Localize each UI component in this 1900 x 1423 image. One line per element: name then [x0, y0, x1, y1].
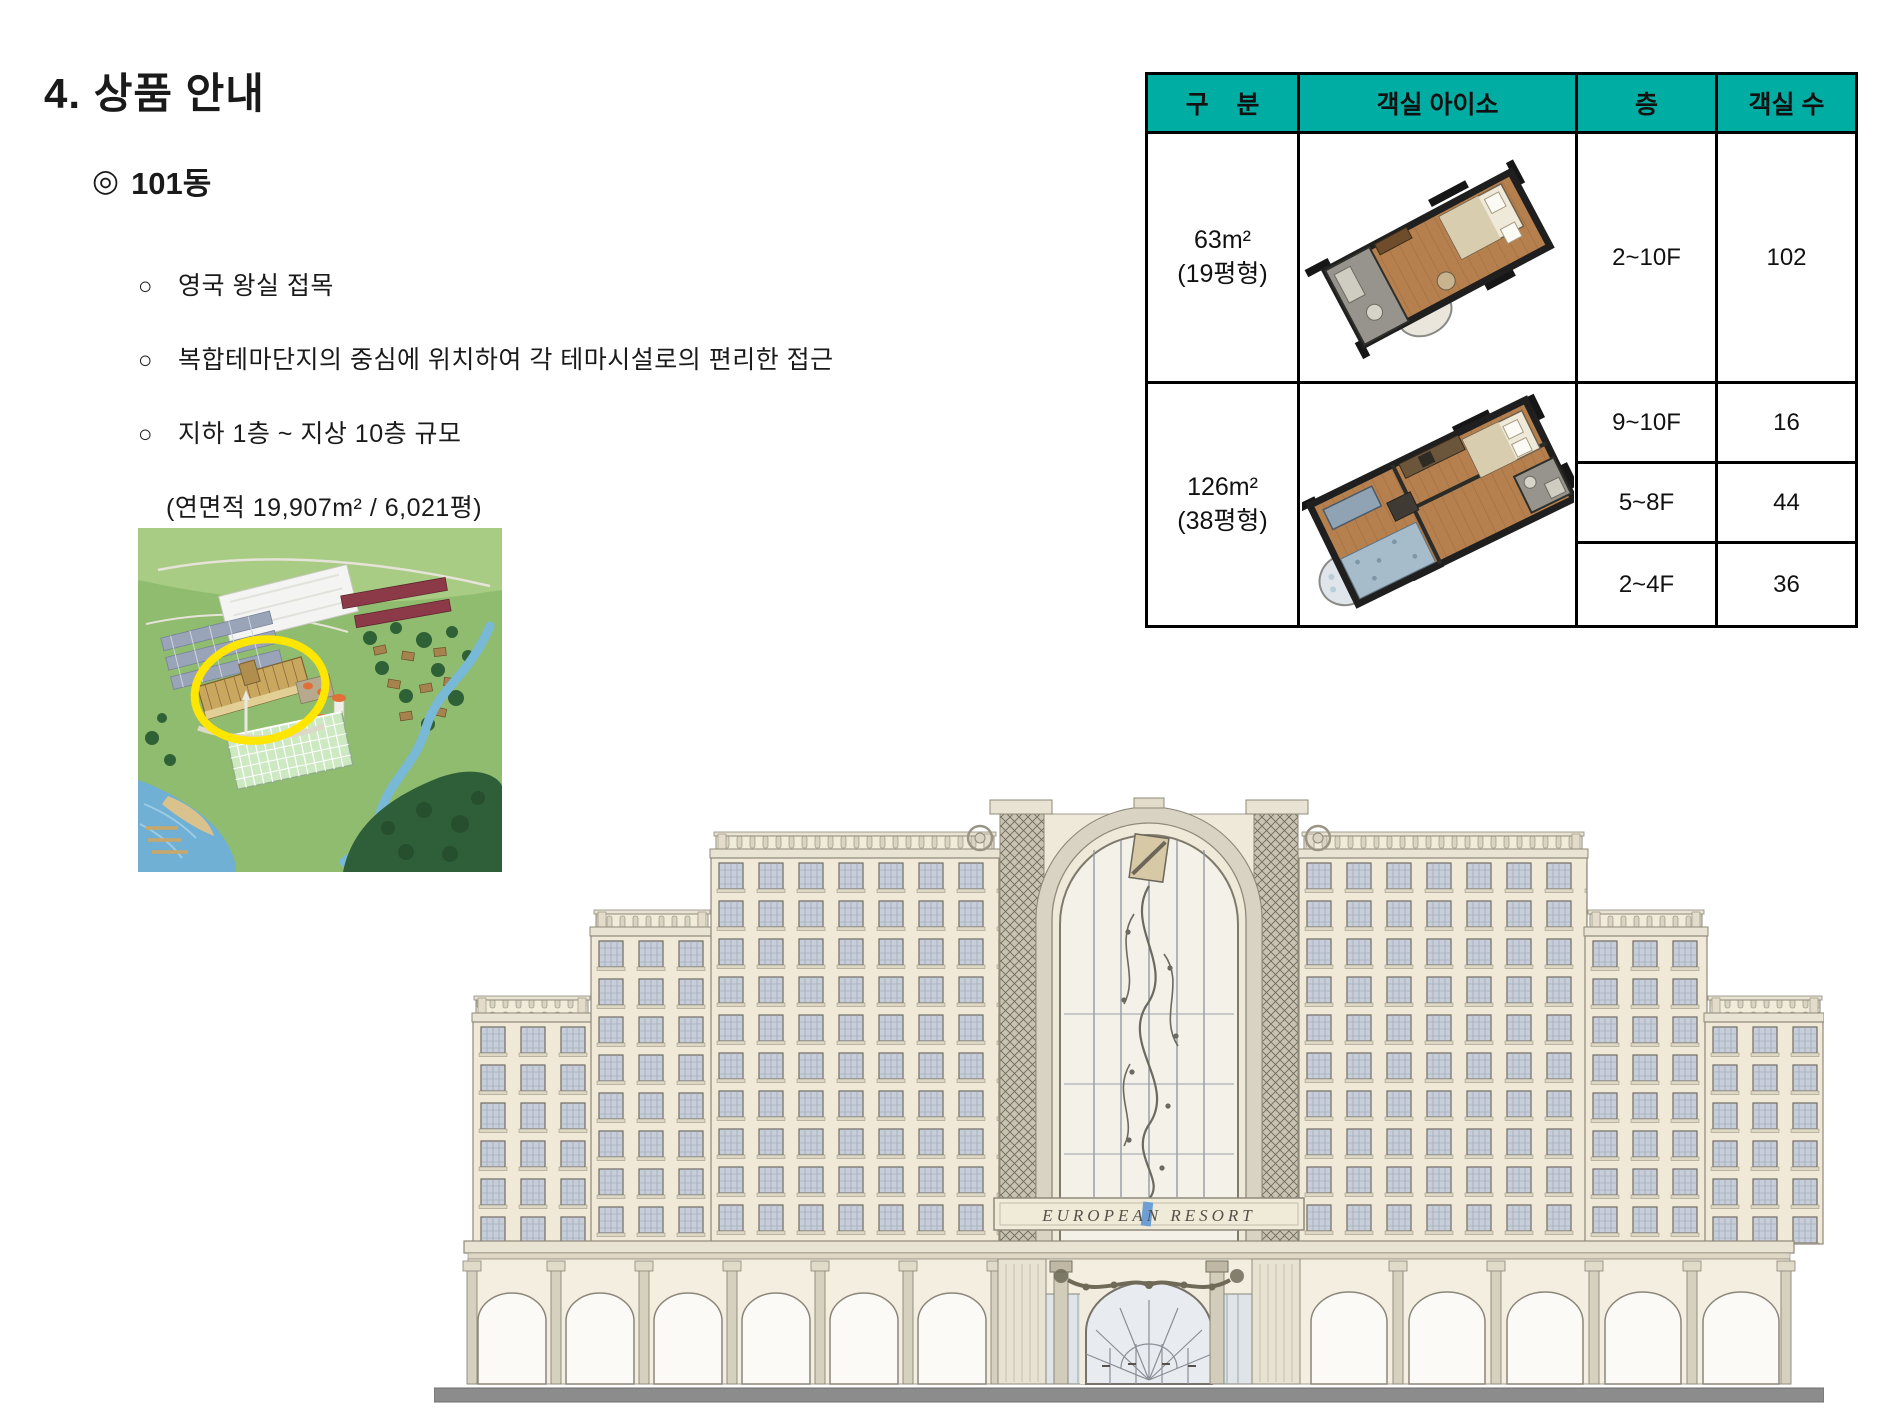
bullet-item: ○ 지하 1층 ~ 지상 10층 규모: [138, 414, 834, 450]
wing-right-mid: [1584, 910, 1708, 1244]
bullet-text: 영국 왕실 접목: [178, 266, 334, 302]
room-count-cell: 44: [1717, 463, 1857, 543]
double-circle-marker-icon: ◎: [92, 163, 119, 199]
circle-marker-icon: ○: [138, 273, 164, 301]
col-header-category: 구 분: [1147, 74, 1299, 133]
area-cell-63: 63m² (19평형): [1147, 133, 1299, 383]
room-126-iso-svg: [1302, 386, 1574, 624]
block-left-tall: [710, 832, 1000, 1244]
col-header-room-count: 객실 수: [1717, 74, 1857, 133]
area-value: 126m²: [1148, 471, 1297, 505]
room-count-cell: 36: [1717, 543, 1857, 627]
ground-strip: [434, 1388, 1824, 1402]
table-header-row: 구 분 객실 아이소 층 객실 수: [1147, 74, 1857, 133]
elevation-svg: EUROPEAN RESORT: [434, 754, 1824, 1406]
banner-text: EUROPEAN RESORT: [1041, 1206, 1255, 1225]
floor-cell: 2~10F: [1577, 133, 1717, 383]
floor-cell: 2~4F: [1577, 543, 1717, 627]
col-header-floor: 층: [1577, 74, 1717, 133]
floor-cell: 9~10F: [1577, 383, 1717, 463]
center-tower: [968, 798, 1330, 1259]
bullet-text: 지하 1층 ~ 지상 10층 규모: [178, 414, 462, 450]
pyeong-value: (19평형): [1148, 258, 1297, 292]
area-cell-126: 126m² (38평형): [1147, 383, 1299, 627]
building-elevation-image: EUROPEAN RESORT: [434, 754, 1824, 1406]
room-63-isometric-image: [1299, 133, 1577, 383]
bullet-text: (연면적 19,907m² / 6,021평): [166, 488, 482, 524]
section-label: 101동: [131, 158, 211, 203]
bullet-text: 복합테마단지의 중심에 위치하여 각 테마시설로의 편리한 접근: [178, 340, 834, 376]
col-header-room-iso: 객실 아이소: [1299, 74, 1577, 133]
room-count-cell: 16: [1717, 383, 1857, 463]
pyeong-value: (38평형): [1148, 505, 1297, 539]
floor-cell: 5~8F: [1577, 463, 1717, 543]
room-count-cell: 102: [1717, 133, 1857, 383]
resort-name-banner: EUROPEAN RESORT: [994, 1198, 1304, 1230]
bullet-item: ○ 영국 왕실 접목: [138, 266, 834, 302]
wing-left-mid: [590, 910, 714, 1244]
wing-left-low: [472, 996, 594, 1244]
table-row: 126m² (38평형): [1147, 383, 1857, 463]
room-type-table: 구 분 객실 아이소 층 객실 수 63m² (19평형): [1145, 72, 1858, 628]
block-right-tall: [1298, 832, 1588, 1244]
page-title: 4. 상품 안내: [44, 60, 265, 121]
area-value: 63m²: [1148, 224, 1297, 258]
bullet-item: (연면적 19,907m² / 6,021평): [138, 488, 834, 524]
circle-marker-icon: ○: [138, 421, 164, 449]
room-63-iso-svg: [1302, 136, 1574, 380]
bullet-item: ○ 복합테마단지의 중심에 위치하여 각 테마시설로의 편리한 접근: [138, 340, 834, 376]
section-title: ◎ 101동: [92, 158, 211, 203]
room-126-isometric-image: [1299, 383, 1577, 627]
slide: 4. 상품 안내 ◎ 101동 ○ 영국 왕실 접목 ○ 복합테마단지의 중심에…: [0, 0, 1900, 1423]
wing-right-low: [1704, 996, 1824, 1244]
circle-marker-icon: ○: [138, 347, 164, 375]
table-row: 63m² (19평형): [1147, 133, 1857, 383]
